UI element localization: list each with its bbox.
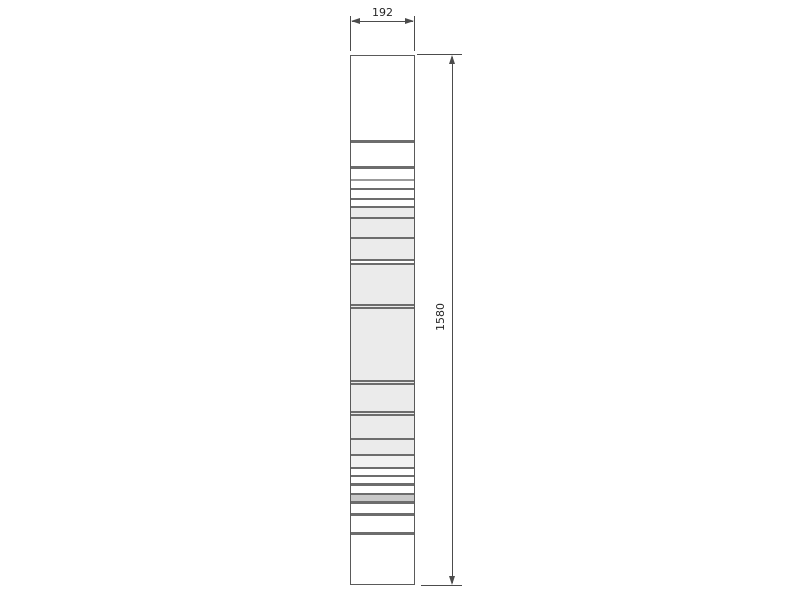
profile-segment — [351, 239, 414, 259]
width-extension-line-right — [414, 16, 415, 51]
profile-segment — [351, 169, 414, 179]
profile-segment — [351, 535, 414, 583]
profile-segment — [351, 385, 414, 411]
height-dimension-line — [452, 57, 453, 583]
height-extension-line-top — [417, 54, 462, 55]
profile-segment — [351, 190, 414, 198]
profile-segment — [351, 504, 414, 513]
profile-segment — [351, 309, 414, 380]
profile-segment — [351, 416, 414, 438]
arrow-down-icon — [449, 576, 455, 585]
height-extension-line-bottom — [421, 585, 462, 586]
post-profile — [350, 55, 415, 585]
profile-segment — [351, 181, 414, 188]
arrow-up-icon — [449, 55, 455, 64]
profile-segment — [351, 143, 414, 166]
width-dimension-line — [352, 21, 413, 22]
width-dimension-label: 192 — [350, 7, 415, 19]
profile-segment — [351, 516, 414, 532]
drawing-canvas: 192 1580 — [0, 0, 800, 600]
profile-segment — [351, 265, 414, 304]
profile-segment — [351, 486, 414, 493]
profile-segment — [351, 56, 414, 140]
profile-segment — [351, 208, 414, 217]
profile-segment — [351, 440, 414, 454]
height-dimension-label: 1580 — [435, 303, 447, 331]
profile-segment — [351, 456, 414, 467]
profile-segment — [351, 219, 414, 237]
